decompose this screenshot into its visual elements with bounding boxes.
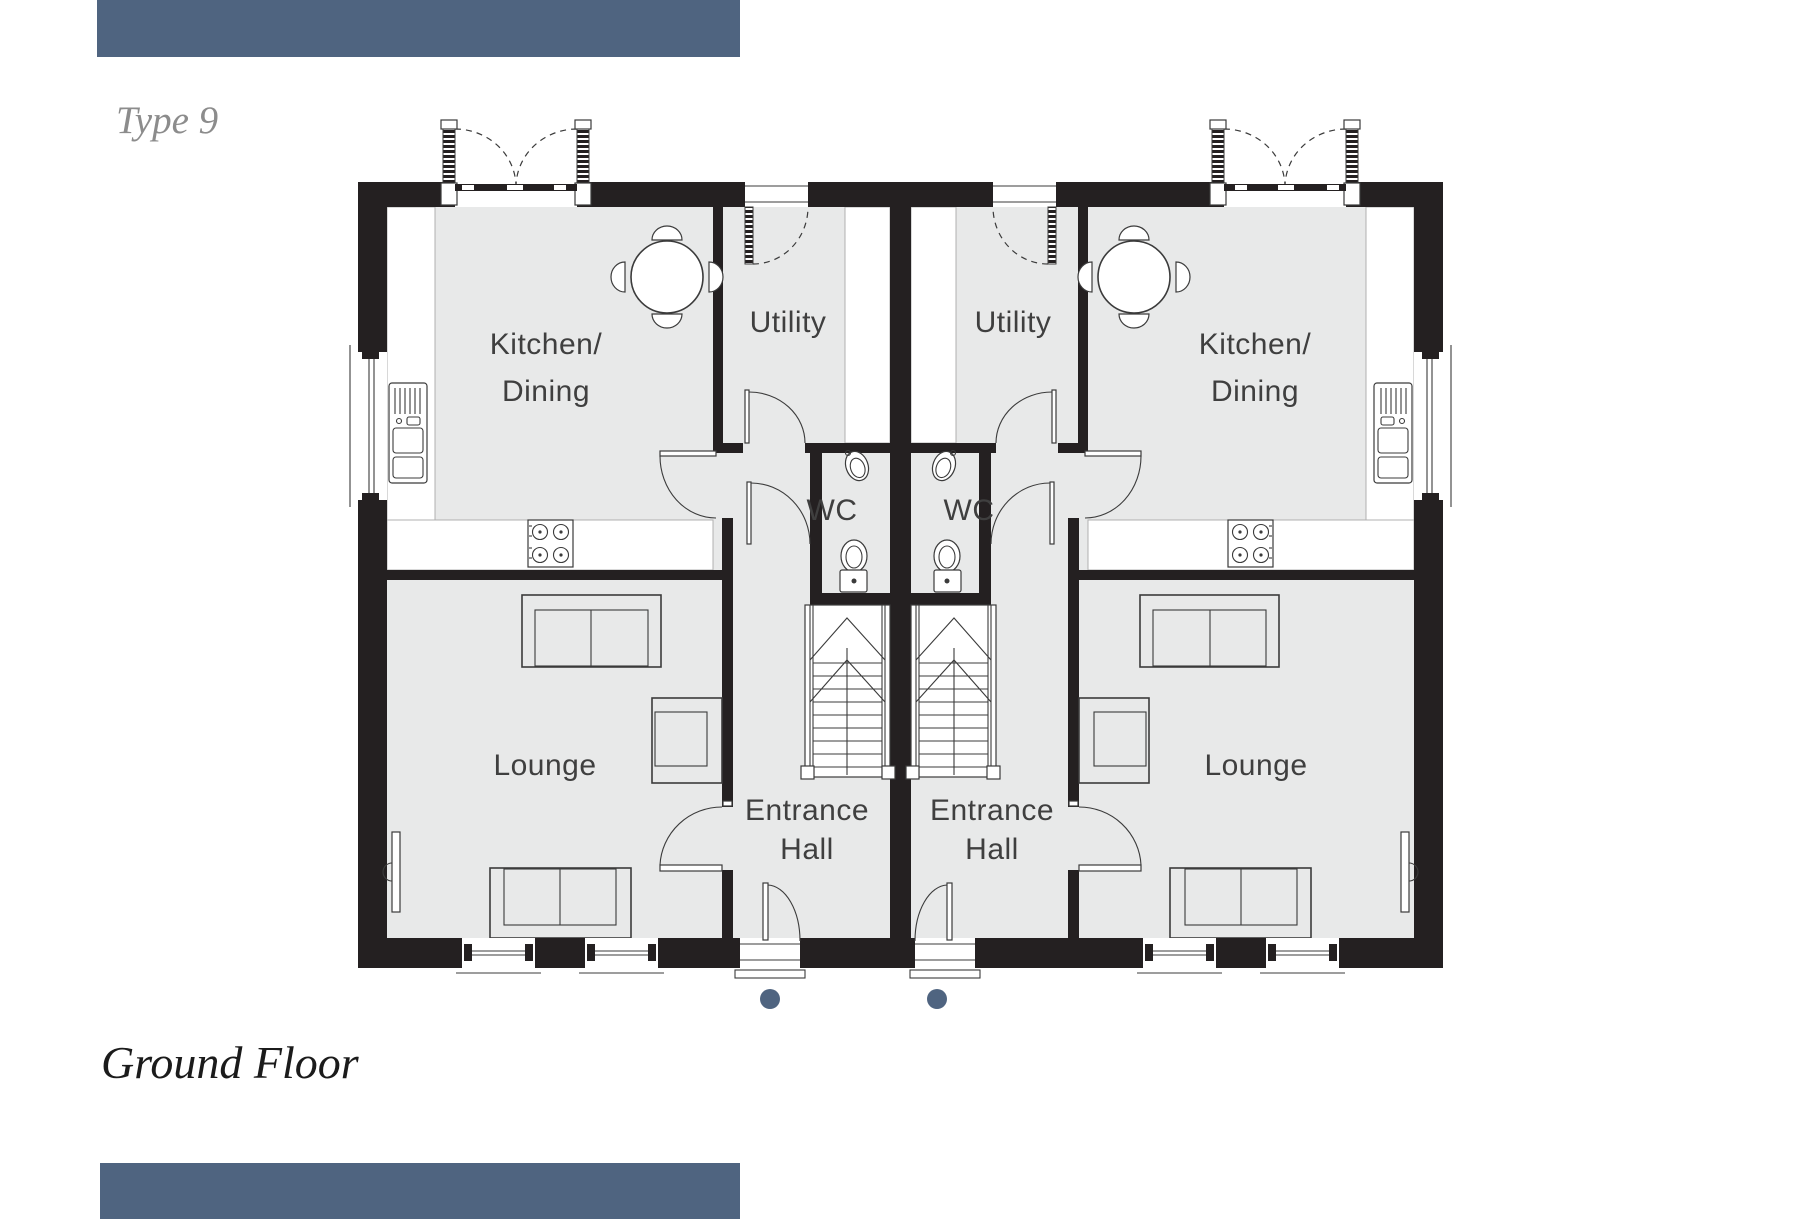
- room-label-hall-right: Entrance Hall: [882, 791, 1102, 869]
- room-label-wc-right: WC: [859, 487, 1079, 534]
- room-label-kitchen-left: Kitchen/ Dining: [436, 321, 656, 415]
- front-door-marker-left: [760, 989, 780, 1009]
- room-label-kitchen-right: Kitchen/ Dining: [1145, 321, 1365, 415]
- room-label-lounge-left: Lounge: [435, 742, 655, 789]
- room-label-utility-left: Utility: [678, 299, 898, 346]
- footer-bar: [100, 1163, 740, 1219]
- floor-caption: Ground Floor: [101, 1036, 359, 1089]
- front-door-marker-right: [927, 989, 947, 1009]
- room-label-utility-right: Utility: [903, 299, 1123, 346]
- room-label-lounge-right: Lounge: [1146, 742, 1366, 789]
- plan-type-title: Type 9: [116, 98, 218, 143]
